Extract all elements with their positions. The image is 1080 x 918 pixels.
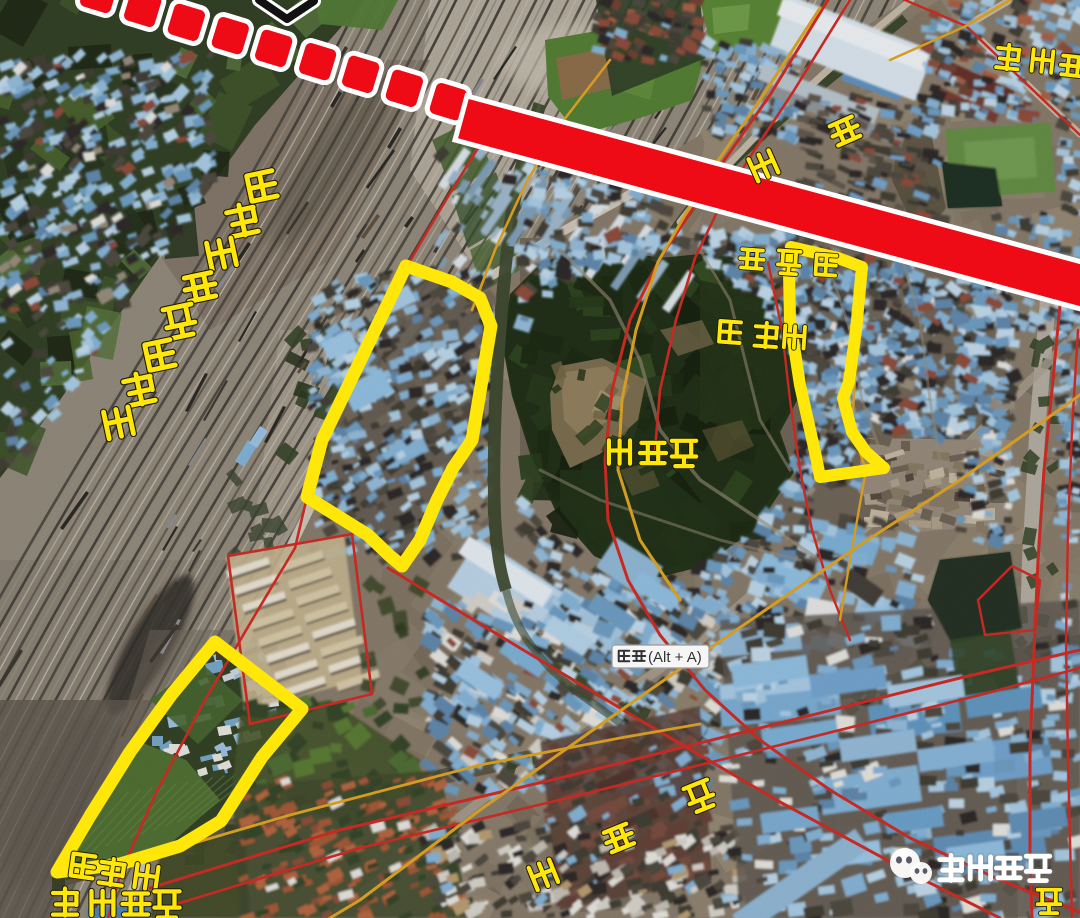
svg-text:(Alt + A): (Alt + A) [648,649,702,666]
